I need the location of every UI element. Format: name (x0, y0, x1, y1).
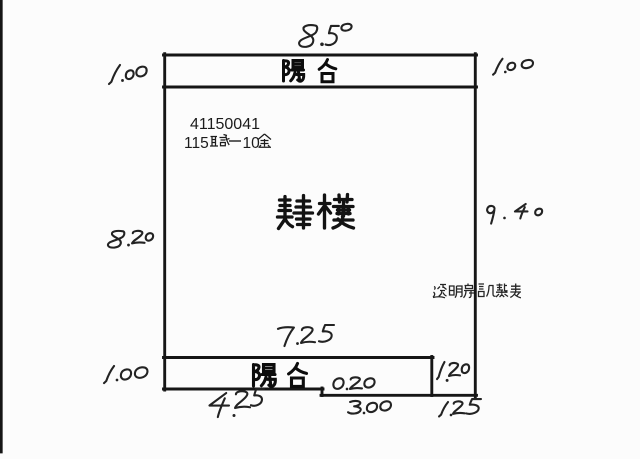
svg-text:10: 10 (243, 135, 261, 152)
svg-text:41150041: 41150041 (190, 116, 260, 133)
svg-text:115: 115 (184, 135, 209, 152)
